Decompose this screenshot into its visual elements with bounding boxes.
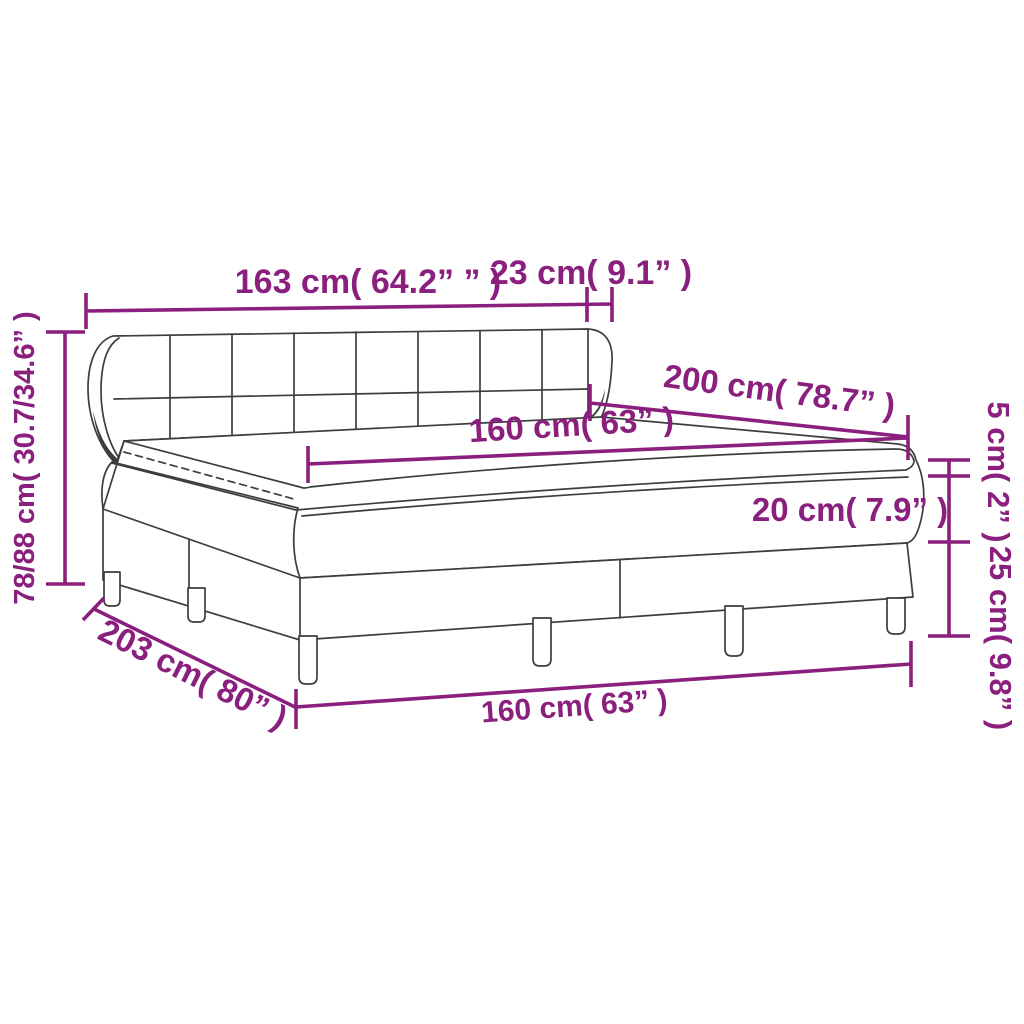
dim-heights-line xyxy=(928,460,970,636)
bed-leg xyxy=(188,588,205,622)
dim-total-length-label: 203 cm( 80” ) xyxy=(93,611,293,736)
bed-leg xyxy=(533,618,551,666)
diagram-canvas: 163 cm( 64.2” ” ) 23 cm( 9.1” ) 200 cm( … xyxy=(0,0,1024,1024)
bed-dimension-diagram: 163 cm( 64.2” ” ) 23 cm( 9.1” ) 200 cm( … xyxy=(0,0,1024,1024)
dim-headboard-depth-label: 23 cm( 9.1” ) xyxy=(490,254,692,292)
dim-headboard-width-label: 163 cm( 64.2” ” ) xyxy=(235,263,501,301)
bed-leg xyxy=(725,606,743,656)
bed-leg xyxy=(104,572,120,606)
dim-headboard-height-label: 78/88 cm( 30.7/34.6” ) xyxy=(9,311,41,604)
dim-topper-height-label: 5 cm( 2” ) xyxy=(981,401,1016,542)
dim-base-height-label: 25 cm( 9.8” ) xyxy=(983,546,1018,730)
dim-headboard-height-line xyxy=(46,332,85,584)
bed-leg xyxy=(299,636,317,684)
bed-leg xyxy=(887,598,905,634)
dim-mattress-height-label: 20 cm( 7.9” ) xyxy=(752,491,948,528)
